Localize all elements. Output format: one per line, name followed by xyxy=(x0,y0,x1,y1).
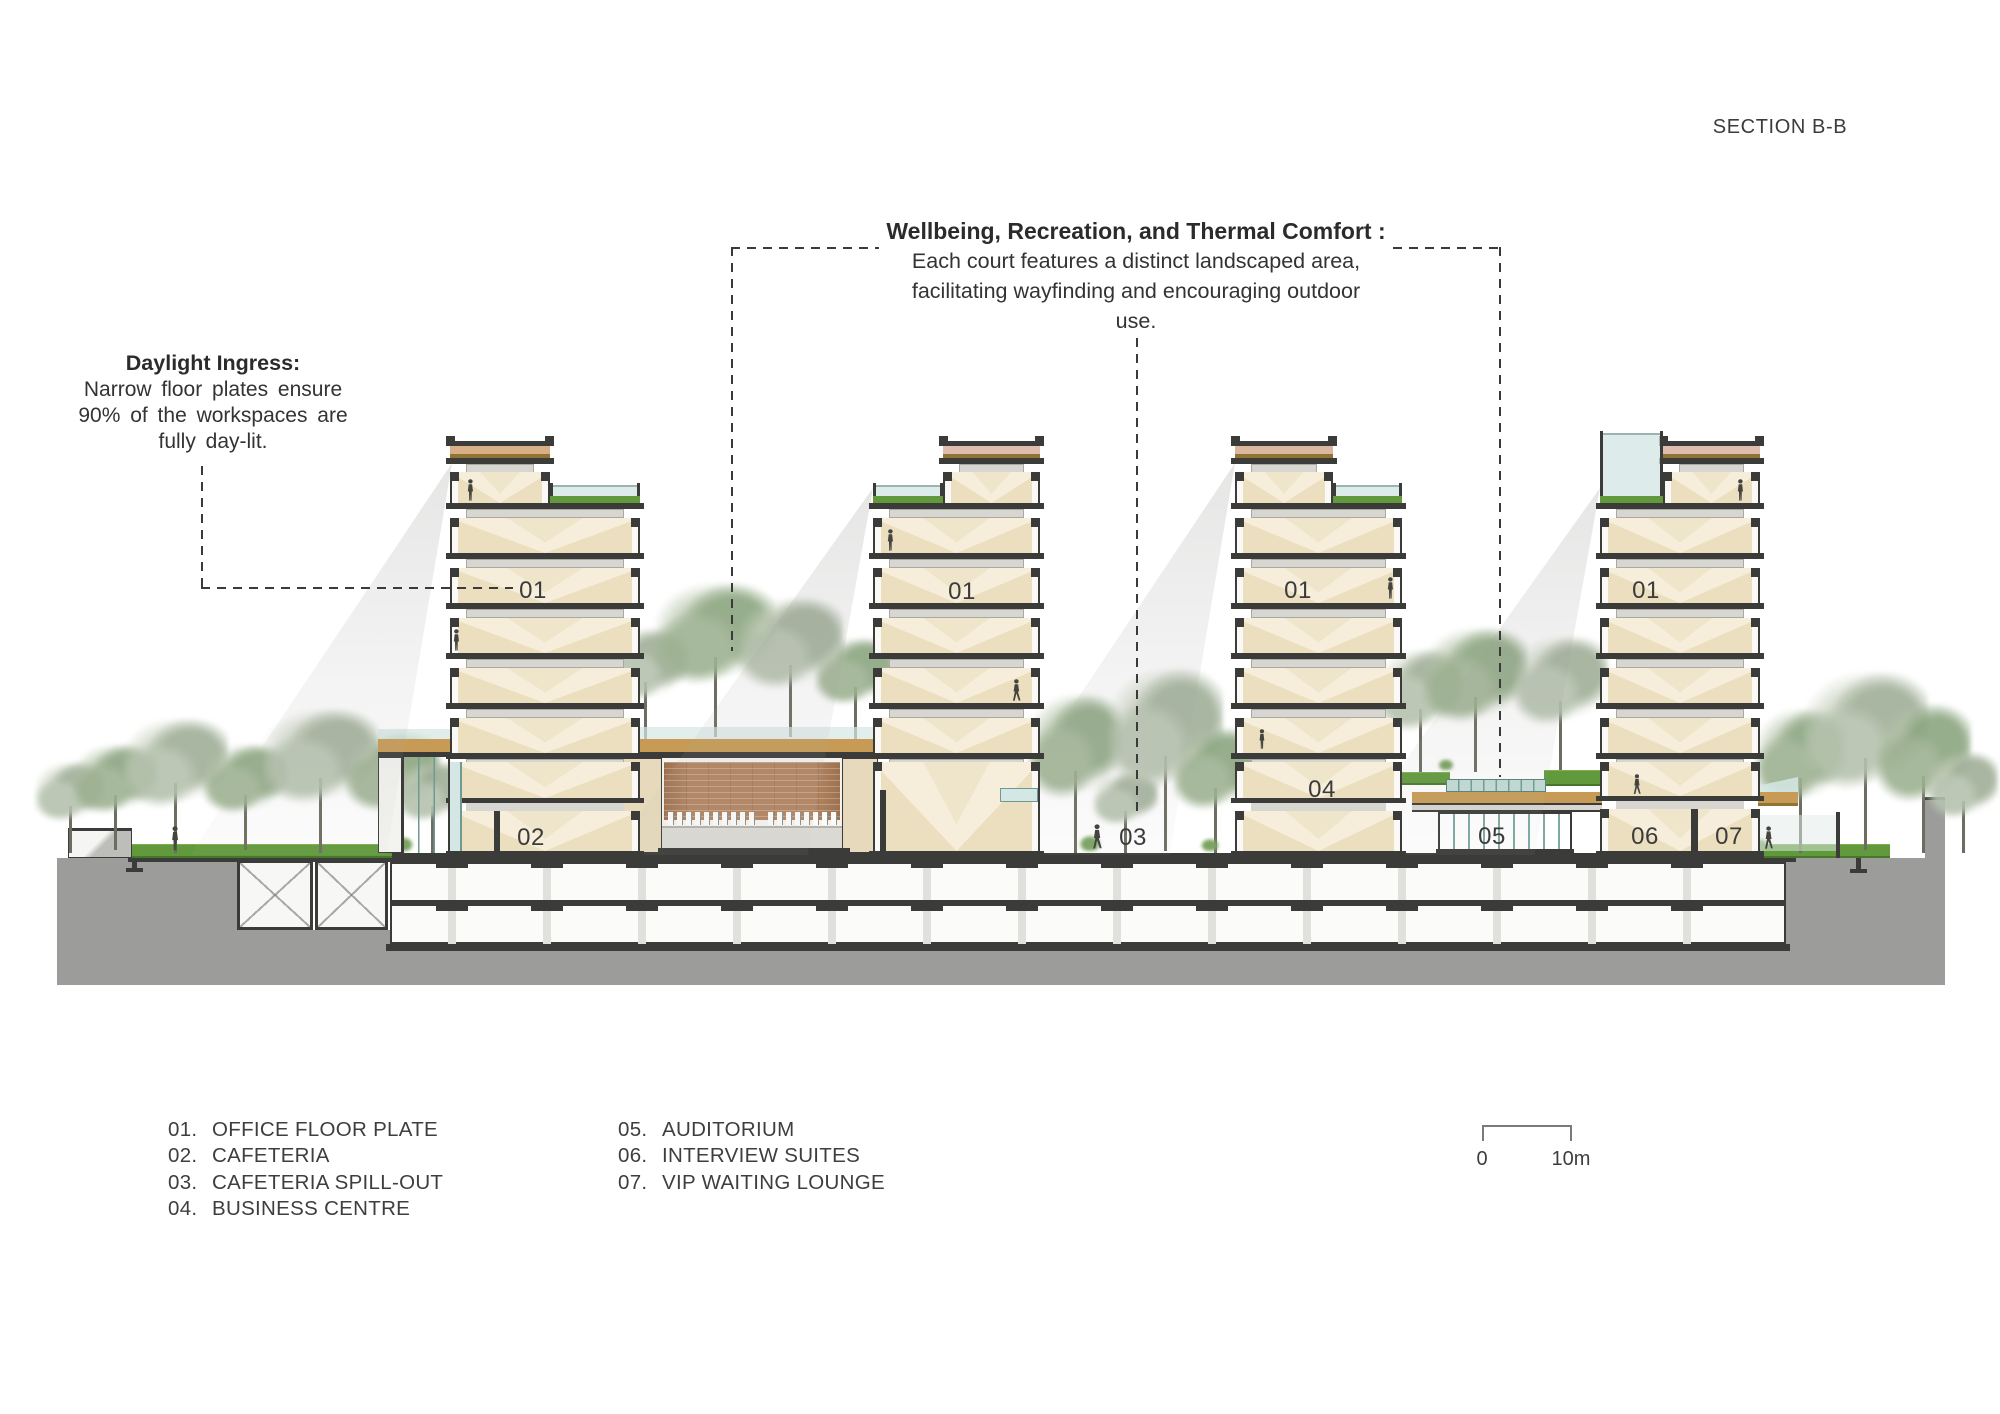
column-stub xyxy=(1393,718,1402,727)
drawing-label: 01 xyxy=(948,578,976,606)
annotation-daylight-line: Narrow floor plates ensure xyxy=(64,377,362,403)
ceiling-beam xyxy=(466,709,624,718)
ground-mass xyxy=(1786,858,1945,985)
column-stub xyxy=(1751,518,1760,527)
person-silhouette xyxy=(885,529,896,553)
column-cap xyxy=(1196,862,1228,868)
ceiling-beam xyxy=(1251,559,1386,568)
scale-bar-bracket xyxy=(1482,1125,1572,1141)
column-stub xyxy=(631,762,640,771)
column-stub xyxy=(1600,568,1609,577)
tower-base-slab xyxy=(869,851,1044,859)
column-cap xyxy=(1386,862,1418,868)
legend-item-number: 05. xyxy=(618,1118,662,1142)
ground-anchor xyxy=(1850,869,1867,873)
column-stub xyxy=(1235,762,1244,771)
column-stub xyxy=(450,568,459,577)
column-cap xyxy=(1576,862,1608,868)
legend-item-label: VIP WAITING LOUNGE xyxy=(662,1171,885,1194)
ceiling-beam xyxy=(1616,609,1744,618)
ceiling-beam xyxy=(1251,509,1386,518)
column-stub xyxy=(1235,718,1244,727)
glass-wall xyxy=(1000,788,1038,802)
annotation-daylight-line: 90% of the workspaces are xyxy=(64,403,362,429)
column-stub xyxy=(1751,568,1760,577)
column-cap xyxy=(1291,906,1323,911)
column-stub xyxy=(450,472,459,481)
column-stub xyxy=(450,668,459,677)
ceiling-beam xyxy=(1251,803,1386,811)
column-stub xyxy=(1751,668,1760,677)
railing-post xyxy=(1836,812,1840,858)
annotation-daylight: Daylight Ingress: Narrow floor plates en… xyxy=(64,350,362,455)
annotation-daylight-line: fully day-lit. xyxy=(64,429,362,455)
legend-item-number: 04. xyxy=(168,1197,212,1221)
column-cap xyxy=(1196,906,1228,911)
column-stub xyxy=(1751,762,1760,771)
column-stub xyxy=(873,762,882,771)
column-cap xyxy=(1101,906,1133,911)
legend-item-number: 01. xyxy=(168,1118,212,1142)
legend-item-number: 03. xyxy=(168,1171,212,1195)
legend-item-number: 07. xyxy=(618,1171,662,1195)
ceiling-beam xyxy=(1616,559,1744,568)
ground-mass xyxy=(237,930,390,985)
tower-base-slab xyxy=(1231,851,1406,859)
annotation-wellbeing-line: Each court features a distinct landscape… xyxy=(880,246,1392,276)
ceiling-beam xyxy=(1616,659,1744,668)
column-cap xyxy=(1386,906,1418,911)
column-stub xyxy=(1235,811,1244,820)
grass-strip xyxy=(1544,770,1602,786)
column-stub xyxy=(1235,618,1244,627)
basement-mid-slab xyxy=(390,900,1786,906)
legend-item-label: OFFICE FLOOR PLATE xyxy=(212,1118,438,1141)
leader-dashed-line xyxy=(1499,247,1501,777)
scale-bar-end-label: 10m xyxy=(1552,1148,1591,1171)
column-stub xyxy=(1600,668,1609,677)
column-stub xyxy=(1235,568,1244,577)
leader-dashed-line xyxy=(731,247,879,249)
leader-dashed-line xyxy=(1136,338,1138,816)
person-silhouette xyxy=(1763,826,1774,851)
person-silhouette xyxy=(1735,479,1746,503)
drawing-label: 01 xyxy=(1632,577,1660,605)
person-silhouette xyxy=(1632,774,1642,796)
column-stub xyxy=(873,718,882,727)
ceiling-beam xyxy=(466,659,624,668)
column-cap xyxy=(1006,906,1038,911)
bush xyxy=(1197,835,1223,851)
drawing-label: 05 xyxy=(1478,823,1506,851)
column-cap xyxy=(721,862,753,868)
wall-pier xyxy=(1032,762,1040,851)
column-cap xyxy=(436,906,468,911)
tree xyxy=(1928,748,1998,853)
column-cap xyxy=(1576,906,1608,911)
ceiling-beam xyxy=(1251,659,1386,668)
column-stub xyxy=(1393,518,1402,527)
column-cap xyxy=(1671,862,1703,868)
column-cap xyxy=(721,906,753,911)
legend-item-label: BUSINESS CENTRE xyxy=(212,1197,410,1220)
person-silhouette xyxy=(169,826,181,853)
column-stub xyxy=(1324,472,1333,481)
column-cap xyxy=(626,862,658,868)
ceiling-beam xyxy=(466,559,624,568)
column-stub xyxy=(1031,668,1040,677)
drawing-label: 02 xyxy=(517,824,545,852)
annex-glass-wall xyxy=(402,757,450,853)
railing-post xyxy=(1660,431,1663,500)
column-stub xyxy=(631,618,640,627)
ceiling-beam xyxy=(1616,709,1744,718)
person-silhouette xyxy=(1257,729,1267,751)
column-stub xyxy=(1600,618,1609,627)
column-stub xyxy=(631,668,640,677)
annotation-wellbeing-line: use. xyxy=(880,306,1392,336)
glass-wall xyxy=(450,762,462,851)
leader-dashed-line xyxy=(731,247,733,651)
column-stub xyxy=(943,472,952,481)
legend-item-number: 02. xyxy=(168,1144,212,1168)
column-stub xyxy=(1600,518,1609,527)
person-silhouette xyxy=(1011,679,1022,703)
column-cap xyxy=(1291,862,1323,868)
column-stub xyxy=(1751,718,1760,727)
ceiling-beam xyxy=(889,709,1024,718)
legend-item: 05.AUDITORIUM xyxy=(618,1118,794,1142)
column-stub xyxy=(1751,809,1760,818)
column-cap xyxy=(531,906,563,911)
column-cap xyxy=(911,862,943,868)
column-stub xyxy=(1031,568,1040,577)
column-cap xyxy=(436,862,468,868)
legend-item-number: 06. xyxy=(618,1144,662,1168)
partition-wall xyxy=(1691,809,1698,851)
column-cap xyxy=(1481,906,1513,911)
ceiling-beam xyxy=(466,803,624,811)
person-silhouette xyxy=(451,629,462,653)
tree-canopy xyxy=(1928,748,1998,826)
column-cap xyxy=(1481,862,1513,868)
column-stub xyxy=(1031,618,1040,627)
legend-item-label: AUDITORIUM xyxy=(662,1118,794,1141)
ceiling-beam xyxy=(889,609,1024,618)
ground-mass xyxy=(390,951,1786,985)
drawing-title: SECTION B-B xyxy=(1652,116,1908,139)
column-cap xyxy=(1101,862,1133,868)
basement-bottom-slab xyxy=(386,944,1790,951)
ceiling-beam xyxy=(1616,801,1744,809)
column-stub xyxy=(631,568,640,577)
drawing-label: 04 xyxy=(1308,776,1336,804)
column-stub xyxy=(873,618,882,627)
legend-item: 03.CAFETERIA SPILL-OUT xyxy=(168,1171,443,1195)
column-cap xyxy=(1671,906,1703,911)
column-cap xyxy=(626,906,658,911)
column-cap xyxy=(816,862,848,868)
legend-item: 01.OFFICE FLOOR PLATE xyxy=(168,1118,438,1142)
annotation-daylight-title: Daylight Ingress: xyxy=(64,350,362,377)
column-stub xyxy=(631,518,640,527)
drawing-label: 01 xyxy=(519,577,547,605)
column-stub xyxy=(541,472,550,481)
scale-bar-start-label: 0 xyxy=(1476,1148,1487,1171)
column-stub xyxy=(1235,668,1244,677)
drawing-label: 01 xyxy=(1284,577,1312,605)
basement-shaft xyxy=(237,860,313,930)
column-stub xyxy=(1393,618,1402,627)
legend-item-label: INTERVIEW SUITES xyxy=(662,1144,860,1167)
column-stub xyxy=(631,811,640,820)
column-stub xyxy=(1393,668,1402,677)
annotation-wellbeing-title: Wellbeing, Recreation, and Thermal Comfo… xyxy=(880,216,1392,246)
column-stub xyxy=(1031,762,1040,771)
ceiling-beam xyxy=(889,509,1024,518)
column-cap xyxy=(1006,862,1038,868)
leader-dashed-line xyxy=(1393,247,1499,249)
column-stub xyxy=(873,568,882,577)
column-stub xyxy=(1393,811,1402,820)
basement-shaft xyxy=(315,860,388,930)
legend-item-label: CAFETERIA SPILL-OUT xyxy=(212,1171,443,1194)
annotation-wellbeing: Wellbeing, Recreation, and Thermal Comfo… xyxy=(880,216,1392,336)
partition-wall xyxy=(880,790,886,851)
column-stub xyxy=(1031,718,1040,727)
column-stub xyxy=(1600,718,1609,727)
tower-base-slab xyxy=(1596,851,1764,859)
section-drawing-canvas: 01010101020304050607 SECTION B-B Wellbei… xyxy=(0,0,2000,1414)
legend-item: 02.CAFETERIA xyxy=(168,1144,330,1168)
column-cap xyxy=(531,862,563,868)
legend-item: 06.INTERVIEW SUITES xyxy=(618,1144,860,1168)
person-silhouette xyxy=(465,479,476,503)
column-stub xyxy=(1751,618,1760,627)
leader-dashed-line xyxy=(201,587,513,589)
column-stub xyxy=(1235,472,1244,481)
leader-dashed-line xyxy=(201,466,203,587)
column-cap xyxy=(816,906,848,911)
column-stub xyxy=(1031,518,1040,527)
drawing-label: 07 xyxy=(1715,823,1743,851)
column-stub xyxy=(450,718,459,727)
drawing-label: 03 xyxy=(1119,824,1147,852)
column-stub xyxy=(1663,472,1672,481)
column-stub xyxy=(450,518,459,527)
partition-wall xyxy=(494,811,500,851)
column-stub xyxy=(1751,472,1760,481)
column-stub xyxy=(1031,472,1040,481)
terrace-glass-railing xyxy=(1601,433,1662,502)
column-stub xyxy=(873,518,882,527)
ceiling-beam xyxy=(1251,709,1386,718)
ceiling-beam xyxy=(889,659,1024,668)
ceiling-beam xyxy=(1251,609,1386,618)
legend-item-label: CAFETERIA xyxy=(212,1144,330,1167)
drawing-label: 06 xyxy=(1631,823,1659,851)
legend-item: 04.BUSINESS CENTRE xyxy=(168,1197,410,1221)
column-stub xyxy=(873,668,882,677)
ceiling-beam xyxy=(466,609,624,618)
canopy-roof xyxy=(1758,792,1798,806)
ceiling-beam xyxy=(889,559,1024,568)
column-stub xyxy=(1393,568,1402,577)
ground-mass xyxy=(57,858,240,985)
column-stub xyxy=(1600,809,1609,818)
person-silhouette xyxy=(1385,577,1396,601)
railing-post xyxy=(1600,431,1603,500)
column-stub xyxy=(1235,518,1244,527)
ceiling-beam xyxy=(466,509,624,518)
column-stub xyxy=(450,618,459,627)
ceiling-beam xyxy=(1616,509,1744,518)
column-stub xyxy=(1393,762,1402,771)
column-stub xyxy=(631,718,640,727)
tower-base-slab xyxy=(446,851,644,859)
annotation-wellbeing-line: facilitating wayfinding and encouraging … xyxy=(880,276,1392,306)
column-cap xyxy=(911,906,943,911)
legend-item: 07.VIP WAITING LOUNGE xyxy=(618,1171,885,1195)
ground-anchor xyxy=(126,868,143,872)
column-stub xyxy=(1600,762,1609,771)
person-silhouette xyxy=(1091,824,1103,851)
